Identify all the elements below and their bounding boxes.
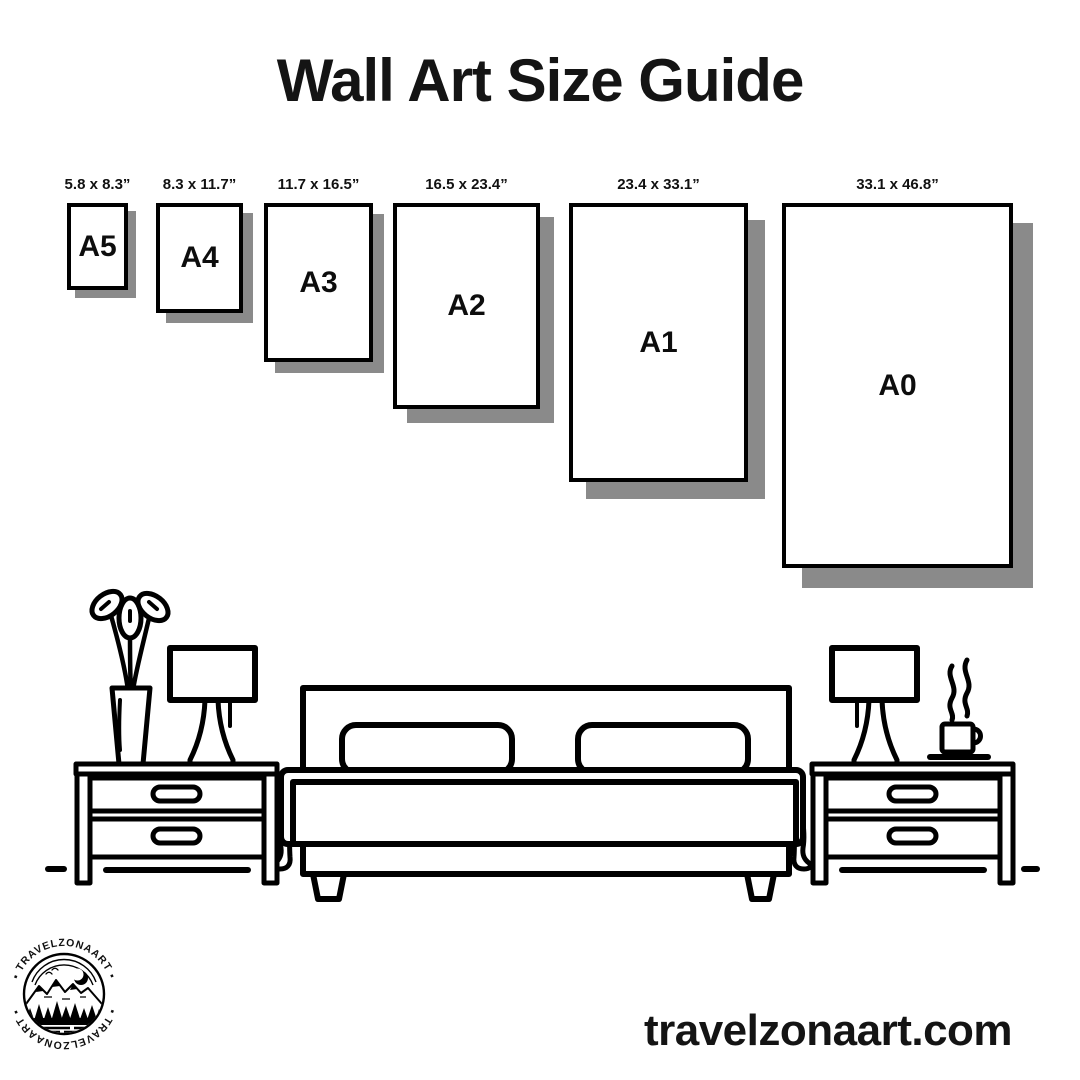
size-name-a2: A2 bbox=[447, 289, 485, 323]
lamp-stem bbox=[854, 700, 897, 764]
page-title: Wall Art Size Guide bbox=[0, 46, 1080, 115]
drawer-handle bbox=[889, 829, 936, 843]
paper-sheet-a3: A3 bbox=[264, 203, 373, 362]
brand-logo: ▪ TRAVELZONAART ▪ ▪ TRAVELZONAART ▪ bbox=[2, 932, 126, 1056]
size-dimensions-a2: 16.5 x 23.4” bbox=[425, 176, 508, 193]
bed-pillow-right bbox=[578, 725, 748, 773]
bed-foot-right bbox=[747, 874, 774, 899]
drawer-handle bbox=[153, 787, 200, 801]
nightstand-left bbox=[76, 764, 277, 883]
plant-vase bbox=[87, 586, 173, 764]
bed-illustration bbox=[274, 688, 811, 899]
size-name-a1: A1 bbox=[639, 326, 677, 360]
size-name-a4: A4 bbox=[180, 241, 218, 275]
size-card-a5: 5.8 x 8.3” A5 bbox=[67, 203, 128, 290]
size-name-a0: A0 bbox=[878, 369, 916, 403]
bed-pillow-left bbox=[342, 725, 512, 773]
steam-icon bbox=[950, 660, 969, 720]
size-dimensions-a0: 33.1 x 46.8” bbox=[856, 176, 939, 193]
drawer-handle bbox=[889, 787, 936, 801]
size-dimensions-a1: 23.4 x 33.1” bbox=[617, 176, 700, 193]
nightstand-right bbox=[812, 764, 1013, 883]
size-card-a4: 8.3 x 11.7” A4 bbox=[156, 203, 243, 313]
lamp-stem bbox=[190, 700, 233, 764]
size-card-a3: 11.7 x 16.5” A3 bbox=[264, 203, 373, 362]
size-name-a5: A5 bbox=[78, 230, 116, 264]
bed-mattress-front bbox=[293, 782, 796, 844]
paper-sheet-a2: A2 bbox=[393, 203, 540, 409]
table-lamp-right bbox=[832, 648, 917, 764]
nightstand-top bbox=[812, 764, 1013, 774]
size-card-a2: 16.5 x 23.4” A2 bbox=[393, 203, 540, 409]
vase-highlight bbox=[119, 700, 120, 750]
bedroom-illustration bbox=[40, 580, 1040, 905]
bed-base bbox=[303, 844, 789, 874]
moon-cutout bbox=[72, 969, 84, 981]
size-name-a3: A3 bbox=[299, 266, 337, 300]
size-dimensions-a3: 11.7 x 16.5” bbox=[278, 176, 360, 193]
paper-sheet-a0: A0 bbox=[782, 203, 1013, 568]
coffee-cup bbox=[930, 660, 988, 757]
table-lamp-left bbox=[170, 648, 255, 764]
lamp-shade bbox=[832, 648, 917, 700]
paper-sheet-a5: A5 bbox=[67, 203, 128, 290]
size-card-a1: 23.4 x 33.1” A1 bbox=[569, 203, 748, 482]
drawer-handle bbox=[153, 829, 200, 843]
website-text: travelzonaart.com bbox=[644, 1006, 1012, 1056]
cup-body bbox=[942, 724, 973, 752]
size-dimensions-a5: 5.8 x 8.3” bbox=[65, 176, 131, 193]
paper-sheet-a4: A4 bbox=[156, 203, 243, 313]
nightstand-top bbox=[76, 764, 277, 774]
paper-sheet-a1: A1 bbox=[569, 203, 748, 482]
bed-foot-left bbox=[313, 874, 344, 899]
size-card-a0: 33.1 x 46.8” A0 bbox=[782, 203, 1013, 568]
lamp-shade bbox=[170, 648, 255, 700]
wall-art-size-guide-poster: Wall Art Size Guide 5.8 x 8.3” A5 8.3 x … bbox=[0, 0, 1080, 1080]
size-dimensions-a4: 8.3 x 11.7” bbox=[163, 176, 236, 193]
